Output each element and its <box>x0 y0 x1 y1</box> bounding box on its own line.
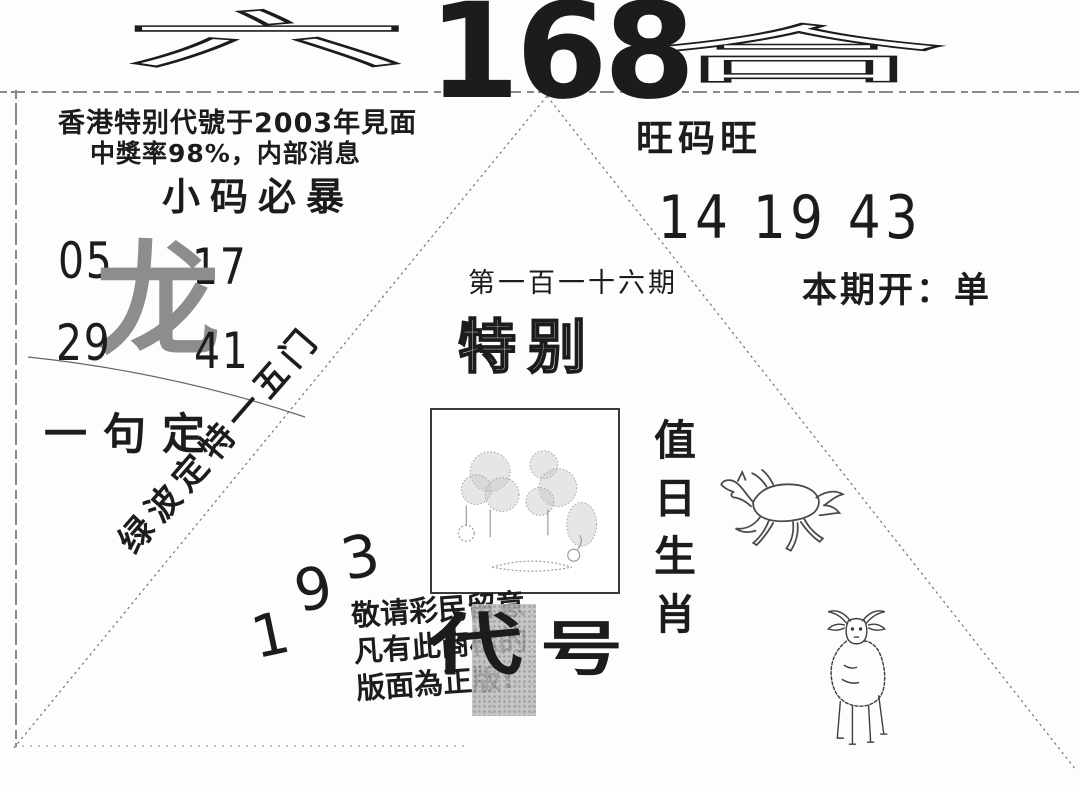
wang-code-slogan: 旺码旺 <box>636 120 762 157</box>
landscape-picture-frame <box>430 408 620 594</box>
lucky-numbers: 14 19 43 <box>658 188 922 248</box>
goat-drawing <box>810 604 906 752</box>
special-title: 特别 <box>458 318 598 376</box>
duty-zodiac-vertical: 值 日 生 肖 <box>654 420 696 636</box>
duty-zodiac-char-3: 生 <box>654 536 696 578</box>
corner-number-29: 29 <box>56 318 111 368</box>
stylized-liu-logo: 六 <box>122 10 411 72</box>
stylized-he-logo: 合 <box>645 24 949 87</box>
code-word-dai: 代 <box>428 612 523 679</box>
small-code-slogan: 小码必暴 <box>162 178 354 216</box>
lottery-tip-sheet-page: 六 168 合 香港特别代號于2003年見面 中獎率98%，内部消息 小码必暴 … <box>0 0 1080 792</box>
code-word-hao: 号 <box>540 620 623 679</box>
intro-line-2: 中獎率98%，内部消息 <box>90 141 361 166</box>
duty-zodiac-char-2: 日 <box>654 478 696 520</box>
duty-zodiac-char-1: 值 <box>654 420 696 462</box>
landscape-sketch <box>432 410 618 592</box>
duty-zodiac-char-4: 肖 <box>654 594 696 636</box>
issue-label: 第一百一十六期 <box>468 270 678 297</box>
horse-drawing <box>712 460 852 565</box>
current-draw-result: 本期开：单 <box>802 274 992 309</box>
intro-line-1: 香港特别代號于2003年見面 <box>58 110 417 137</box>
corner-number-41: 41 <box>194 326 249 376</box>
